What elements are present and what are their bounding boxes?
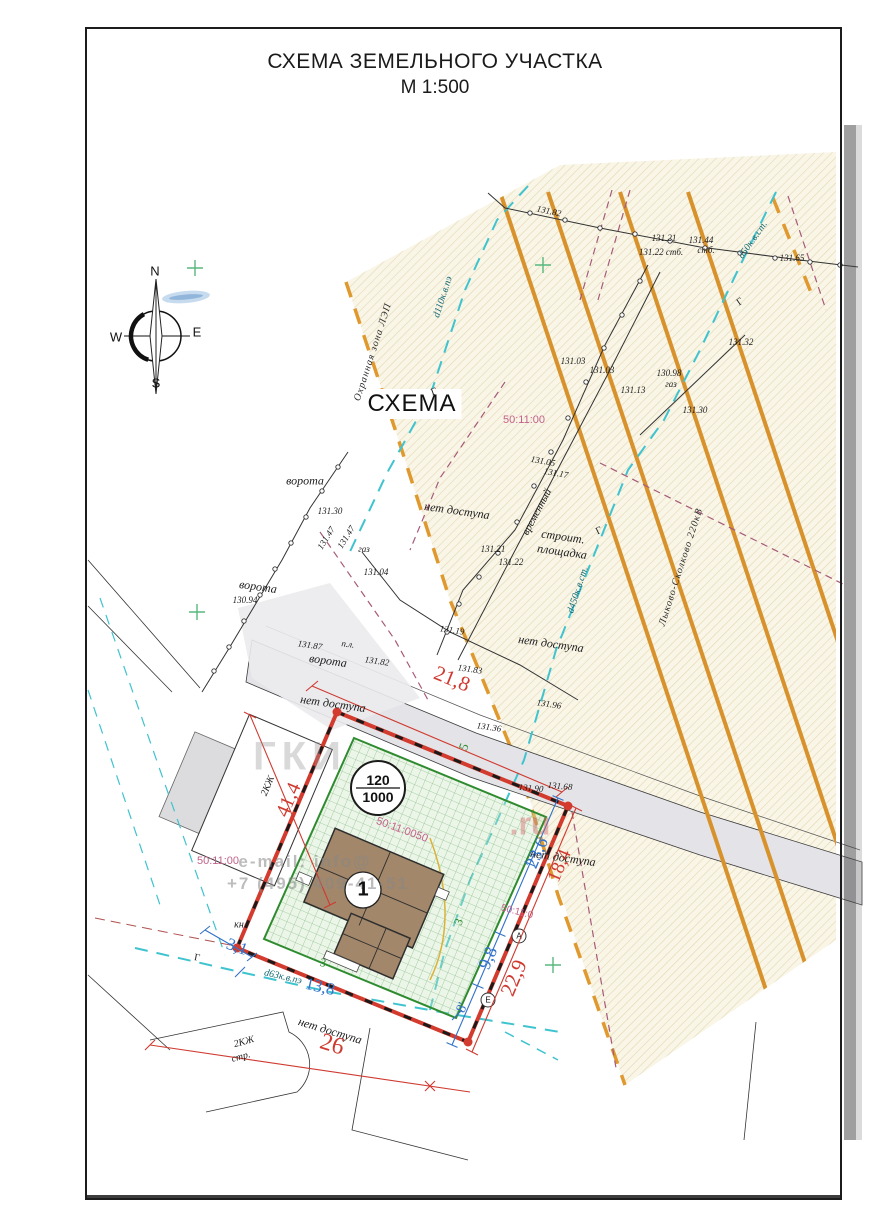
map-label: 131.21 (481, 544, 506, 554)
watermark-domain: .ru (510, 806, 551, 843)
red-dashed-line (95, 918, 240, 947)
compass-south: S (152, 376, 161, 391)
map-label: газ (665, 379, 677, 389)
map-label: 131.04 (364, 567, 389, 577)
ratio-denominator: 1000 (362, 789, 393, 805)
map-label: 131.30 (683, 405, 708, 415)
map-label: 131.44 (689, 235, 714, 245)
map-label: 131.03 (561, 356, 586, 366)
point-e: Е (485, 996, 490, 1005)
map-label: п.л. (341, 638, 355, 650)
watermark-logo: ГКИ (253, 735, 347, 780)
scheme-label: СХЕМА (363, 389, 462, 419)
cadastral-quarter: 50:11:00 (503, 414, 545, 426)
watermark-email: e-mail: info@ (238, 852, 371, 872)
map-label: 131.22 стб. (639, 247, 683, 257)
ratio-numerator: 120 (366, 772, 389, 788)
map-label: 131.30 (318, 506, 343, 516)
page-scale: М 1:500 (0, 77, 870, 99)
map-label: 131.22 (499, 557, 524, 567)
plot-ratio-circle (351, 761, 405, 815)
map-label: 130.98 (657, 368, 682, 378)
map-label: газ (358, 544, 370, 554)
scan-edge-shadow (844, 125, 862, 1140)
compass-west: W (110, 330, 122, 345)
page-title: СХЕМА ЗЕМЕЛЬНОГО УЧАСТКА (0, 50, 870, 74)
map-label: кн (234, 920, 244, 931)
map-label: 131.90 (518, 782, 544, 794)
map-label: 131.21 (652, 233, 677, 243)
watermark-phone: +7 (495) 409-41-51 (227, 874, 409, 894)
map-label: 131.32 (729, 337, 754, 347)
building-number: 1 (357, 879, 368, 902)
map-label: 130.94 (233, 595, 258, 605)
scanned-land-plot-scheme: СХЕМА ЗЕМЕЛЬНОГО УЧАСТКА М 1:500 СХЕМА N… (0, 0, 870, 1230)
map-label: 131.68 (547, 780, 573, 792)
compass-east: E (193, 325, 202, 340)
compass-north: N (150, 264, 159, 279)
point-a: А (516, 932, 521, 941)
map-label: стб. (697, 245, 714, 255)
map-label: 131.03 (590, 365, 615, 375)
scan-smudge (162, 289, 211, 305)
gate-label: ворота (286, 474, 324, 489)
map-label: 131.65 (780, 253, 805, 263)
cadastral-quarter: 50:11:00 (197, 855, 239, 867)
map-drawing (0, 0, 870, 1230)
map-label: 131.13 (621, 385, 646, 395)
